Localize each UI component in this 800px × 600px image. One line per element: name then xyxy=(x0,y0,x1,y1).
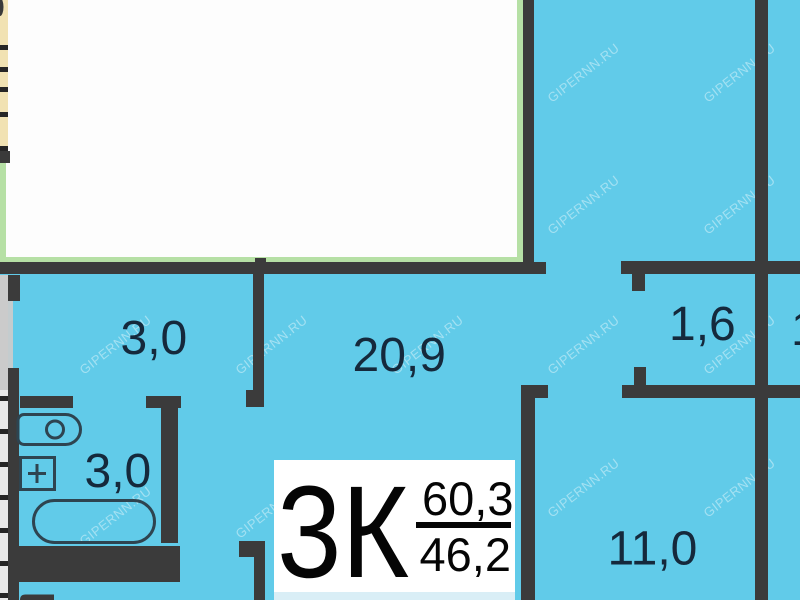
svg-text:60,3: 60,3 xyxy=(422,472,513,525)
svg-text:1,6: 1,6 xyxy=(669,298,736,351)
svg-text:3,0: 3,0 xyxy=(121,312,188,365)
svg-text:3К: 3К xyxy=(277,458,409,600)
svg-text:3,0: 3,0 xyxy=(85,445,152,498)
svg-text:20,9: 20,9 xyxy=(353,329,446,382)
svg-text:1: 1 xyxy=(791,303,800,356)
svg-text:11,0: 11,0 xyxy=(608,523,698,576)
svg-text:46,2: 46,2 xyxy=(420,528,511,581)
